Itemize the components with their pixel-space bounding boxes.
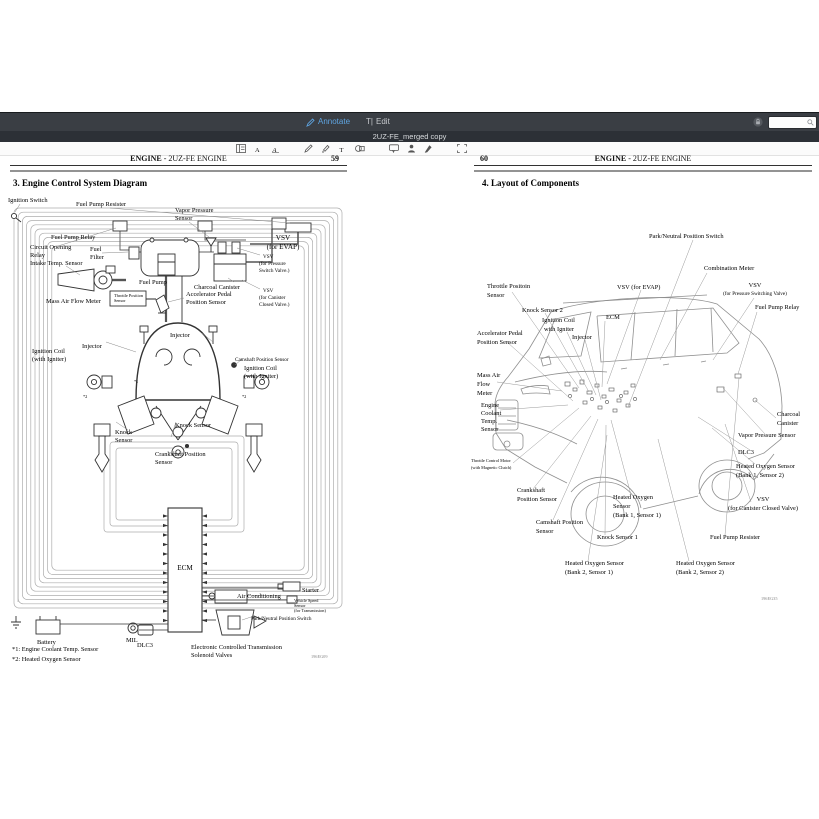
diagram-label: Crankshaft [517, 487, 545, 494]
diagram-label: Vapor Pressure [175, 207, 214, 214]
diagram-label: Fuel Pump Resister [710, 534, 761, 541]
footnote: *1: Engine Coolant Temp. Sensor [12, 646, 99, 653]
diagram-label: Position Sensor [477, 339, 518, 346]
diagram-label: Accelerator Pedal [477, 330, 523, 337]
page59-header-title: ENGINE - 2UZ-FE ENGINE [10, 154, 347, 163]
page60-header: ENGINE - 2UZ-FE ENGINE 60 [474, 154, 812, 165]
mode-switcher: Annotate T| Edit [306, 113, 390, 131]
search-input[interactable] [769, 119, 807, 126]
diagram-label: Park/Neutral Position Switch [251, 616, 312, 622]
diagram-label: Filter [90, 254, 105, 261]
diagram-label: VSV [263, 288, 274, 294]
diagram-label: (for Canister [259, 294, 286, 301]
diagram-label: with Igniter [544, 326, 575, 333]
page60-section-title: 4. Layout of Components [482, 178, 579, 188]
diagram-label: Canister [777, 420, 799, 427]
engine-control-system-diagram: Ignition Switch Fuel Pump Resister Vapor… [6, 192, 350, 676]
header-title-bold: ENGINE [595, 154, 627, 163]
diagram-label: Injector [572, 334, 593, 341]
diagram-label: Engine [481, 402, 499, 409]
document-titlebar: 2UZ-FE_merged copy [0, 131, 819, 142]
diagram-label: Accelerator Pedal [186, 291, 232, 298]
diagram-label: Temp. [481, 418, 497, 425]
diagram-label: Park/Neutral Position Switch [649, 233, 724, 240]
component-shapes [11, 213, 311, 635]
diagram-label: Flow [477, 381, 491, 388]
page59-number: 59 [331, 154, 339, 163]
ecm-label: ECM [177, 564, 193, 572]
diagram-label: Crankshaft Position [155, 451, 206, 458]
diagram-label: Meter [477, 390, 493, 397]
p60-labels: Park/Neutral Position Switch Combination… [471, 233, 800, 601]
component-markers [565, 374, 757, 412]
highlighter-icon[interactable] [321, 144, 330, 153]
diagram-label: Fuel Pump Relay [51, 234, 96, 241]
diagram-label: (Bank 2, Sensor 2) [676, 569, 724, 576]
diagram-label: Heated Oxygen [613, 494, 654, 501]
annotate-button[interactable]: Annotate [306, 118, 350, 127]
diagram-label: (for Pressure [259, 260, 286, 267]
note-icon[interactable] [389, 144, 399, 153]
diagram-label: Charcoal Canister [194, 284, 241, 291]
diagram-label: Knock Sensor 1 [597, 534, 638, 541]
diagram-label: Injector [82, 343, 103, 350]
search-field-container [768, 116, 817, 129]
select-area-icon[interactable] [457, 144, 467, 153]
app-toolbar: Annotate T| Edit [0, 112, 819, 131]
annotate-pencil-icon [306, 118, 315, 127]
annotate-label: Annotate [318, 118, 350, 126]
diagram-label: (Bank 1, Sensor 1) [613, 512, 661, 519]
diagram-label: Sensor [536, 528, 554, 535]
diagram-label: Throttle Control Motor [471, 458, 511, 463]
header-title-rest: - 2UZ-FE ENGINE [162, 154, 227, 163]
signature-icon[interactable] [407, 144, 416, 153]
diagram-label: (with Igniter) [244, 373, 278, 380]
diagram-label: Sensor [155, 459, 173, 466]
diagram-label: Knock Sensor 2 [522, 307, 563, 314]
diagram-label: Knock Sensor [175, 422, 212, 429]
diagram-label: (for Transmission) [294, 608, 326, 613]
pencil-icon[interactable] [304, 144, 313, 153]
footnote-mark: *2 [83, 394, 87, 399]
sidebar-thumbnails-icon[interactable] [236, 144, 246, 153]
diagram-label: Starter [302, 587, 320, 594]
diagram-label: Heated Oxygen Sensor [676, 560, 736, 567]
page60-number: 60 [480, 154, 488, 163]
diagram-label: Relay [30, 252, 46, 259]
diagram-label: Electronic Controlled Transmission [191, 644, 283, 651]
diagram-label: Mass Air [477, 372, 501, 379]
header-title-bold: ENGINE [130, 154, 162, 163]
diagram-label: (for Pressure Switching Valve) [723, 290, 787, 297]
diagram-label: (with Igniter) [32, 356, 66, 363]
shapes-icon[interactable] [355, 144, 365, 153]
lock-icon [753, 117, 763, 127]
diagram-label: Injector [170, 332, 191, 339]
svg-text:A: A [255, 147, 260, 153]
page60-header-title: ENGINE - 2UZ-FE ENGINE [474, 154, 812, 163]
edit-label: Edit [376, 118, 390, 126]
search-icon [807, 119, 814, 126]
diagram-label: VSV (for EVAP) [617, 284, 660, 291]
diagram-label: Combination Meter [704, 265, 755, 272]
diagram-label: (for Canister Closed Valve) [728, 505, 798, 512]
footnote: *2: Heated Oxygen Sensor [12, 656, 82, 663]
diagram-label: (Bank 2, Sensor 1) [565, 569, 613, 576]
page59-header-rule [10, 165, 347, 172]
figure-code: 196EG35 [761, 596, 777, 601]
diagram-label: (Bank 1, Sensor 2) [736, 472, 784, 479]
diagram-label: Ignition Coil [32, 348, 65, 355]
diagram-label: Ignition Coil [542, 317, 575, 324]
diagram-label: Camshaft Position Sensor [235, 356, 289, 363]
edit-text-icon: T| [366, 118, 373, 126]
diagram-label: (with Magnetic Clutch) [471, 465, 512, 470]
diagram-label: Knock [115, 429, 133, 436]
header-title-rest: - 2UZ-FE ENGINE [626, 154, 691, 163]
diagram-label: Charcoal [777, 411, 800, 418]
diagram-label: DLC3 [137, 642, 153, 649]
page60-header-rule [474, 165, 812, 172]
document-title: 2UZ-FE_merged copy [373, 132, 447, 141]
diagram-label: DLC3 [738, 449, 754, 456]
diagram-label: Fuel Pump Resister [76, 201, 127, 208]
diagram-label: Fuel [90, 246, 102, 253]
lock-button[interactable] [752, 116, 763, 127]
diagram-label: Sensor [115, 437, 133, 444]
diagram-label: (for EVAP) [267, 243, 300, 251]
diagram-label: Sensor [175, 215, 193, 222]
diagram-label: Solenoid Valves [191, 652, 233, 659]
diagram-label: Battery [37, 639, 57, 646]
text-style-icon[interactable]: A [254, 144, 263, 153]
diagram-label: Mass Air Flow Meter [46, 298, 102, 305]
diagram-label: Fuel Pump [139, 279, 167, 286]
draw-pen-icon[interactable] [424, 144, 433, 153]
diagram-label: Closed Valve.) [259, 301, 290, 308]
page59-section-title: 3. Engine Control System Diagram [13, 178, 147, 188]
page59-header: ENGINE - 2UZ-FE ENGINE 59 [10, 154, 347, 165]
diagram-label: Position Sensor [186, 299, 227, 306]
figure-code: 196EG09 [311, 654, 327, 659]
diagram-label: Throttle Positoin [487, 283, 531, 290]
diagram-label: Intake Temp. Sensor [30, 260, 83, 267]
diagram-label: Fuel Pump Relay [755, 304, 800, 311]
diagram-label: Vapor Pressure Sensor [738, 432, 796, 439]
diagram-label: Ignition Coil [244, 365, 277, 372]
diagram-label: Circuit Opening [30, 244, 72, 251]
diagram-label: VSV [757, 496, 770, 503]
diagram-label: VSV [276, 234, 291, 242]
diagram-label: Sensor [481, 426, 499, 433]
edit-button[interactable]: T| Edit [366, 118, 390, 126]
diagram-label: Heated Oxygen Sensor [565, 560, 625, 567]
footnote-mark: *2 [242, 394, 246, 399]
svg-text:A: A [272, 147, 277, 153]
text-tool-icon[interactable]: T [338, 144, 347, 153]
diagram-label: Camshaft Position [536, 519, 584, 526]
diagram-label: Ignition Switch [8, 197, 48, 204]
diagram-label: Coolant [481, 410, 501, 417]
diagram-label: Air Conditioning [237, 593, 282, 600]
font-style-icon[interactable]: A [271, 144, 280, 153]
component-layout-diagram: Park/Neutral Position Switch Combination… [455, 192, 815, 676]
diagram-label: ECM [606, 314, 620, 321]
diagram-label: VSV [749, 282, 762, 289]
diagram-label: Position Sensor [517, 496, 558, 503]
diagram-label: Switch Valve.) [259, 267, 290, 274]
svg-text:T: T [340, 147, 344, 153]
diagram-label: Sensor [487, 292, 505, 299]
diagram-label: Sensor [114, 298, 126, 303]
footnote-mark: *1 [134, 379, 138, 384]
diagram-label: VSV [263, 254, 274, 260]
diagram-label: Sensor [613, 503, 631, 510]
diagram-label: Heated Oxygen Sensor [736, 463, 796, 470]
